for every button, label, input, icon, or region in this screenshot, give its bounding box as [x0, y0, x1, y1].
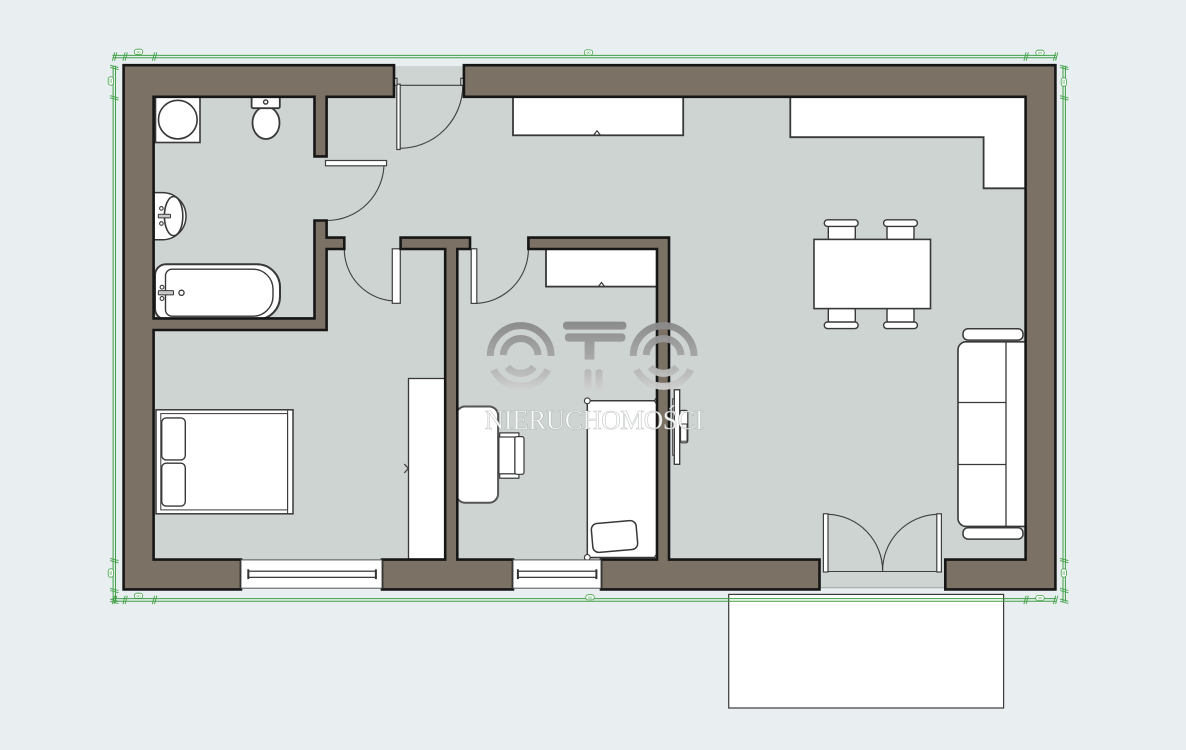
- svg-text:90: 90: [108, 79, 112, 83]
- svg-text:90: 90: [1061, 571, 1065, 575]
- svg-text:90: 90: [586, 51, 590, 55]
- svg-text:90: 90: [136, 50, 140, 54]
- svg-text:90: 90: [588, 596, 592, 600]
- svg-text:90: 90: [1061, 80, 1065, 84]
- svg-text:90: 90: [136, 594, 140, 598]
- svg-text:90: 90: [108, 571, 112, 575]
- svg-text:NIERUCHOMOŚCI: NIERUCHOMOŚCI: [485, 405, 704, 435]
- svg-text:90: 90: [1038, 51, 1042, 55]
- svg-text:90: 90: [1038, 597, 1042, 601]
